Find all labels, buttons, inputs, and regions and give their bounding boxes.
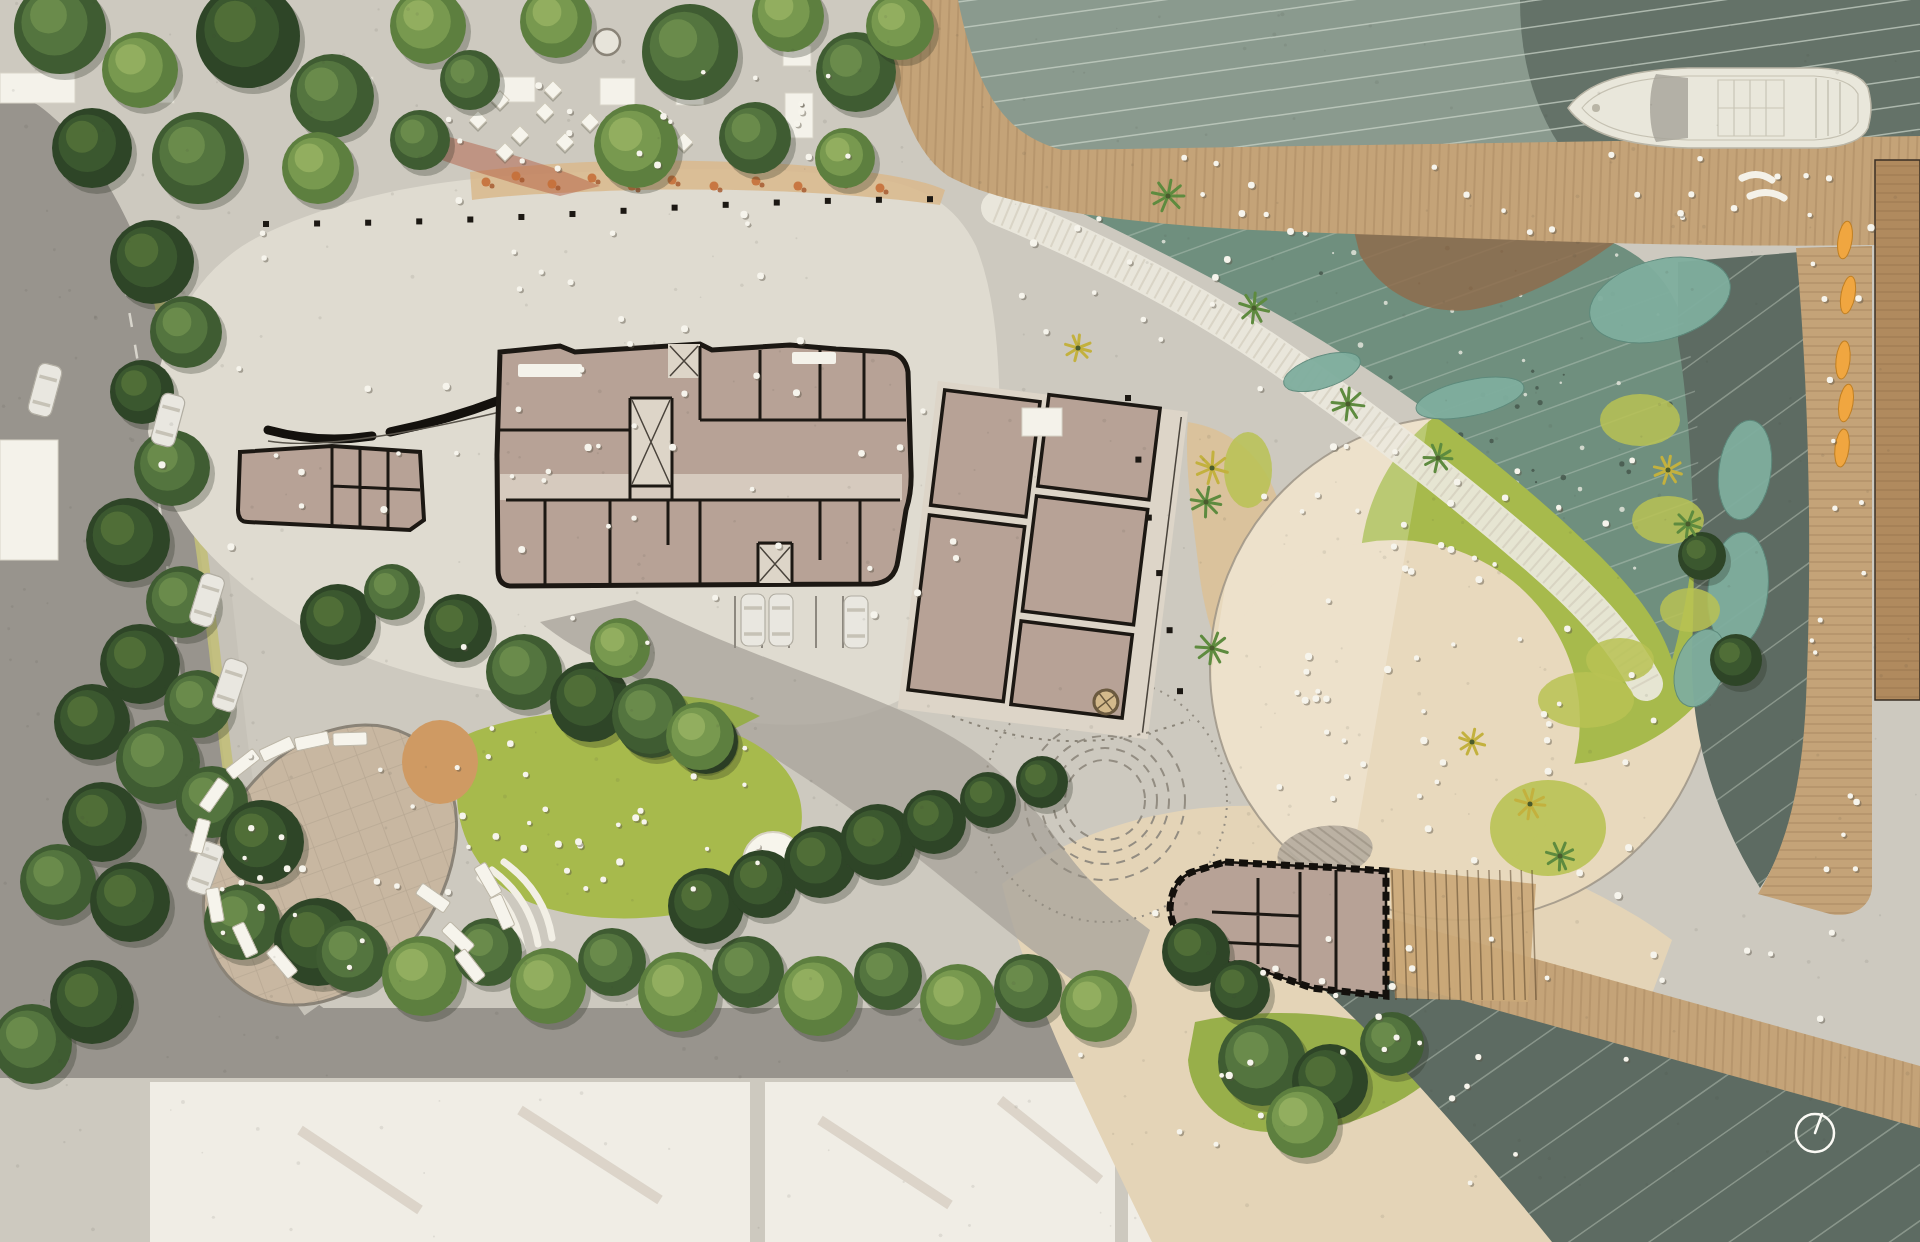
gravel-speckle — [1232, 995, 1236, 999]
rock-speckle — [1535, 386, 1539, 390]
gravel-speckle — [1686, 1157, 1689, 1160]
person-dot-head — [510, 474, 514, 478]
gravel-speckle — [624, 342, 626, 344]
gravel-speckle — [1183, 547, 1185, 549]
gravel-speckle — [787, 1194, 791, 1198]
person-dot-head — [459, 813, 466, 820]
person-dot-head — [1545, 768, 1552, 775]
gravel-speckle — [1375, 80, 1379, 84]
palm-trunk — [1528, 802, 1533, 807]
gravel-speckle — [740, 284, 744, 288]
gravel-speckle — [128, 879, 130, 881]
gravel-speckle — [1809, 226, 1811, 228]
gravel-speckle — [1280, 12, 1284, 16]
gravel-speckle — [1607, 276, 1609, 278]
gravel-speckle — [1468, 586, 1470, 588]
gravel-speckle — [1556, 259, 1558, 261]
gravel-speckle — [747, 886, 749, 888]
gravel-speckle — [1720, 733, 1722, 735]
gravel-speckle — [1672, 1169, 1675, 1172]
person-dot-head — [486, 754, 491, 759]
car — [769, 594, 793, 646]
person-dot-head — [546, 469, 551, 474]
person-dot-head — [1382, 1047, 1387, 1052]
gravel-speckle — [12, 89, 15, 92]
bollard — [263, 221, 269, 227]
tree-canopy-light — [913, 800, 939, 826]
person-dot-head — [691, 773, 697, 779]
gravel-speckle — [1284, 44, 1287, 47]
person-dot-head — [1514, 468, 1520, 474]
gravel-speckle — [958, 492, 960, 494]
gravel-speckle — [250, 505, 253, 508]
gravel-speckle — [322, 61, 325, 64]
person-dot-head — [260, 230, 266, 236]
masterplan-drawing — [0, 0, 1920, 1242]
gravel-speckle — [1283, 543, 1285, 545]
tree-canopy-light — [523, 960, 553, 990]
gravel-speckle — [186, 149, 189, 152]
gravel-speckle — [677, 717, 679, 719]
person-dot-head — [1264, 212, 1269, 217]
person-dot-head — [493, 833, 500, 840]
tree-canopy-light — [401, 120, 425, 144]
main-building-walls — [497, 344, 911, 586]
car — [741, 594, 765, 646]
gravel-speckle — [1503, 81, 1505, 83]
gravel-speckle — [637, 563, 640, 566]
gravel-speckle — [185, 834, 188, 837]
tree-canopy-light — [740, 861, 767, 888]
gravel-speckle — [772, 389, 774, 391]
gravel-speckle — [1184, 902, 1188, 906]
gravel-speckle — [1575, 920, 1579, 924]
person-dot-head — [1375, 1013, 1382, 1020]
gravel-speckle — [1500, 305, 1503, 308]
person-dot-head — [1827, 377, 1833, 383]
tree-canopy-light — [1371, 1022, 1397, 1048]
gravel-speckle — [1551, 757, 1555, 761]
gravel-speckle — [169, 33, 171, 35]
gravel-speckle — [1205, 133, 1208, 136]
gravel-speckle — [1316, 301, 1318, 303]
gravel-speckle — [1048, 801, 1050, 803]
person-dot-head — [1406, 945, 1413, 952]
gravel-speckle — [616, 778, 620, 782]
gravel-speckle — [219, 715, 223, 719]
gravel-speckle — [863, 618, 866, 621]
gravel-speckle — [1158, 16, 1161, 19]
palm-trunk — [1166, 194, 1171, 199]
person-dot-head — [668, 120, 672, 124]
gravel-speckle — [326, 246, 328, 248]
gravel-speckle — [58, 1059, 62, 1063]
palm-trunk — [1346, 402, 1351, 407]
gravel-speckle — [1034, 476, 1036, 478]
gravel-speckle — [1800, 460, 1802, 462]
person-dot-head — [1546, 721, 1552, 727]
gravel-speckle — [15, 2, 18, 5]
person-dot-head — [600, 876, 606, 882]
gravel-speckle — [1574, 495, 1576, 497]
gravel-speckle — [1146, 261, 1149, 264]
gravel-speckle — [1432, 519, 1434, 521]
person-dot-head — [511, 250, 516, 255]
gravel-speckle — [35, 69, 37, 71]
gravel-speckle — [1274, 439, 1278, 443]
gravel-speckle — [956, 34, 959, 37]
palm-trunk — [1558, 854, 1563, 859]
person-dot-head — [1826, 175, 1832, 181]
gravel-speckle — [461, 79, 464, 82]
gravel-speckle — [1426, 210, 1428, 212]
gravel-speckle — [776, 888, 780, 892]
gravel-speckle — [1658, 494, 1662, 498]
gravel-speckle — [1293, 117, 1296, 120]
rock-speckle — [1531, 469, 1534, 472]
context-building — [150, 1082, 750, 1242]
gravel-speckle — [1229, 801, 1232, 804]
gravel-speckle — [566, 892, 568, 894]
gravel-speckle — [1110, 440, 1112, 442]
bollard — [876, 197, 882, 203]
palm-trunk — [1252, 306, 1257, 311]
gravel-speckle — [968, 1224, 971, 1227]
gravel-speckle — [1248, 963, 1251, 966]
tree-canopy-light — [1279, 1098, 1308, 1127]
person-dot-head — [1248, 182, 1255, 189]
bollard — [621, 208, 627, 214]
gravel-speckle — [181, 291, 185, 295]
bollard — [416, 218, 422, 224]
gravel-speckle — [1658, 403, 1661, 406]
tree-canopy-light — [830, 45, 862, 77]
tree-canopy-light — [609, 117, 643, 151]
person-dot-head — [1409, 965, 1415, 971]
person-dot-head — [242, 856, 247, 861]
person-dot-head — [1302, 697, 1309, 704]
gravel-speckle — [1691, 288, 1694, 291]
garden-plant — [482, 178, 491, 187]
gravel-speckle — [938, 27, 941, 30]
gravel-speckle — [577, 537, 579, 539]
gravel-speckle — [377, 8, 379, 10]
person-dot-head — [1224, 256, 1231, 263]
gravel-speckle — [821, 367, 824, 370]
person-dot-head — [1408, 568, 1415, 575]
gravel-speckle — [1807, 960, 1811, 964]
bollard — [569, 211, 575, 217]
shrub-patch — [1660, 588, 1720, 632]
person-dot-head — [1312, 695, 1319, 702]
gravel-speckle — [920, 806, 923, 809]
person-dot-head — [742, 746, 747, 751]
person-dot-head — [1214, 1142, 1219, 1147]
person-dot-head — [753, 75, 758, 80]
gravel-speckle — [1115, 355, 1118, 358]
person-dot-head — [261, 255, 266, 260]
rock-speckle — [1489, 439, 1493, 443]
bollard — [518, 214, 524, 220]
garden-plant-small — [802, 188, 807, 193]
gravel-speckle — [1838, 817, 1841, 820]
gravel-speckle — [1272, 33, 1276, 37]
person-dot-head — [1492, 562, 1497, 567]
person-dot-head — [799, 102, 804, 107]
person-dot-head — [1389, 983, 1396, 990]
gravel-speckle — [185, 623, 187, 625]
rock-speckle — [1162, 240, 1166, 244]
gravel-speckle — [901, 161, 903, 163]
gravel-speckle — [342, 53, 346, 57]
gravel-speckle — [1447, 1108, 1449, 1110]
gravel-speckle — [1145, 1131, 1148, 1134]
person-dot-head — [616, 822, 621, 827]
gravel-speckle — [285, 932, 287, 934]
person-dot-head — [1402, 565, 1409, 572]
rock-speckle — [1523, 393, 1527, 397]
person-dot-head — [953, 555, 959, 561]
person-dot-head — [570, 616, 575, 621]
gravel-speckle — [1835, 71, 1839, 75]
person-dot-head — [1449, 1095, 1455, 1101]
gravel-speckle — [1145, 835, 1147, 837]
person-dot-head — [1629, 458, 1635, 464]
garden-plant-small — [718, 188, 723, 193]
gravel-speckle — [668, 1148, 670, 1150]
gravel-speckle — [629, 655, 632, 658]
person-dot-head — [1226, 1072, 1233, 1079]
gravel-speckle — [1391, 808, 1393, 810]
person-dot-head — [1219, 1073, 1224, 1078]
person-dot-head — [1557, 702, 1562, 707]
garden-plant — [512, 172, 521, 181]
person-dot-head — [750, 487, 755, 492]
gravel-speckle — [1548, 1157, 1551, 1160]
gravel-speckle — [273, 956, 275, 958]
person-dot-head — [1315, 689, 1320, 694]
gravel-speckle — [754, 727, 757, 730]
gravel-speckle — [1295, 313, 1297, 315]
gravel-speckle — [1251, 1018, 1255, 1022]
gravel-speckle — [836, 804, 838, 806]
gravel-speckle — [1446, 362, 1448, 364]
gravel-speckle — [1175, 978, 1177, 980]
person-dot-head — [1247, 1059, 1253, 1065]
tree-canopy-light — [114, 637, 146, 669]
gravel-speckle — [289, 776, 292, 779]
person-dot-head — [1807, 213, 1812, 218]
gravel-speckle — [1245, 654, 1248, 657]
gravel-speckle — [779, 350, 781, 352]
gravel-speckle — [918, 1018, 922, 1022]
person-dot-head — [583, 886, 588, 891]
person-dot-head — [654, 161, 661, 168]
gravel-speckle — [318, 316, 321, 319]
person-dot-head — [257, 904, 264, 911]
gravel-speckle — [186, 114, 188, 116]
person-dot-head — [705, 847, 709, 851]
person-dot-head — [466, 845, 471, 850]
rock-speckle — [1619, 461, 1624, 466]
person-dot-head — [221, 931, 226, 936]
gravel-speckle — [201, 1152, 203, 1154]
tree-canopy-light — [396, 949, 428, 981]
person-dot-head — [1260, 970, 1266, 976]
person-dot-head — [1502, 494, 1509, 501]
rock-speckle — [1388, 375, 1392, 379]
rock-speckle — [1351, 250, 1356, 255]
person-dot-head — [1602, 520, 1609, 527]
gravel-speckle — [1815, 856, 1817, 858]
gravel-speckle — [641, 577, 644, 580]
gravel-speckle — [1341, 647, 1343, 649]
gravel-speckle — [1728, 585, 1731, 588]
kiosk — [0, 440, 58, 560]
gravel-speckle — [712, 255, 714, 257]
gravel-speckle — [1358, 733, 1361, 736]
person-dot-head — [1078, 1053, 1083, 1058]
person-dot-head — [755, 861, 760, 866]
garden-plant-small — [596, 180, 601, 185]
person-dot-head — [596, 444, 601, 449]
gravel-speckle — [227, 211, 230, 214]
gravel-speckle — [1322, 550, 1326, 554]
person-dot-head — [396, 451, 401, 456]
tree-canopy-light — [601, 628, 625, 652]
gravel-speckle — [478, 453, 480, 455]
gravel-speckle — [243, 1034, 245, 1036]
person-dot-head — [539, 269, 544, 274]
gravel-speckle — [270, 995, 273, 998]
gravel-speckle — [1240, 766, 1242, 768]
person-dot-head — [1421, 709, 1426, 714]
person-dot-head — [1564, 626, 1571, 633]
gravel-speckle — [1346, 726, 1350, 730]
gravel-speckle — [425, 766, 427, 768]
gravel-speckle — [75, 357, 78, 360]
tree-canopy-light — [681, 880, 711, 910]
person-dot-head — [455, 197, 462, 204]
gravel-speckle — [1242, 1028, 1245, 1031]
gravel-speckle — [219, 1016, 221, 1018]
person-dot-head — [1855, 295, 1862, 302]
person-dot-head — [1261, 494, 1267, 500]
person-dot-head — [1541, 711, 1547, 717]
gravel-speckle — [1164, 234, 1167, 237]
gravel-speckle — [1247, 812, 1251, 816]
gravel-speckle — [433, 1235, 435, 1237]
gravel-speckle — [475, 694, 479, 698]
gravel-speckle — [1486, 450, 1489, 453]
gravel-speckle — [1023, 98, 1026, 101]
gravel-speckle — [1336, 538, 1339, 541]
gravel-speckle — [397, 608, 400, 611]
gravel-speckle — [903, 1181, 905, 1183]
person-dot-head — [1212, 274, 1219, 281]
tree-canopy-light — [214, 1, 256, 43]
gravel-speckle — [507, 451, 510, 454]
gravel-speckle — [525, 303, 528, 306]
gravel-speckle — [1072, 71, 1074, 73]
gravel-speckle — [340, 522, 342, 524]
person-dot-head — [712, 595, 718, 601]
gravel-speckle — [170, 1109, 172, 1111]
gravel-speckle — [1576, 194, 1580, 198]
garden-plant-small — [884, 190, 889, 195]
gravel-speckle — [93, 1, 95, 3]
gravel-speckle — [310, 111, 313, 114]
rock-speckle — [1537, 400, 1542, 405]
gravel-speckle — [506, 382, 509, 385]
gravel-speckle — [256, 1127, 260, 1131]
tree-canopy-light — [168, 127, 205, 164]
gravel-speckle — [1449, 988, 1451, 990]
person-dot-head — [1158, 337, 1163, 342]
gravel-speckle — [237, 745, 240, 748]
car — [844, 596, 868, 648]
gravel-speckle — [1243, 1123, 1245, 1125]
person-dot-head — [1344, 774, 1349, 779]
gravel-speckle — [1584, 782, 1587, 785]
gravel-speckle — [1143, 447, 1147, 451]
kiosk — [600, 78, 635, 105]
person-dot-head — [616, 858, 623, 865]
gravel-speckle — [1134, 1217, 1137, 1220]
gravel-speckle — [7, 627, 10, 630]
tree-canopy-light — [1174, 929, 1201, 956]
gravel-speckle — [59, 296, 61, 298]
gravel-speckle — [1046, 186, 1049, 189]
tree-canopy-light — [625, 690, 655, 720]
person-dot-head — [637, 151, 643, 157]
gravel-speckle — [118, 1005, 122, 1009]
gravel-speckle — [626, 1003, 628, 1005]
person-dot-head — [299, 503, 304, 508]
gravel-speckle — [1539, 666, 1541, 668]
gravel-speckle — [169, 422, 173, 426]
gravel-speckle — [1022, 152, 1026, 156]
gravel-speckle — [1324, 50, 1326, 52]
person-dot-head — [455, 765, 460, 770]
gravel-speckle — [810, 780, 813, 783]
gravel-speckle — [1102, 419, 1106, 423]
person-dot-head — [578, 366, 584, 372]
gravel-speckle — [896, 856, 899, 859]
person-dot-head — [445, 889, 451, 895]
bollard — [1135, 457, 1141, 463]
person-dot-head — [797, 337, 804, 344]
person-dot-head — [798, 109, 804, 115]
gravel-speckle — [535, 732, 537, 734]
person-dot-head — [527, 821, 532, 826]
tree-canopy-light — [564, 675, 596, 707]
person-dot-head — [1258, 1112, 1264, 1118]
rock-speckle — [1319, 271, 1323, 275]
gravel-speckle — [1895, 60, 1897, 62]
person-dot-head — [645, 640, 650, 645]
person-dot-head — [1475, 576, 1482, 583]
gravel-speckle — [1617, 577, 1619, 579]
gravel-speckle — [1059, 687, 1062, 690]
gravel-speckle — [1455, 793, 1457, 795]
gravel-speckle — [975, 871, 978, 874]
person-dot-head — [238, 880, 244, 886]
person-dot-head — [1391, 543, 1397, 549]
person-dot-head — [1817, 1015, 1824, 1022]
gravel-speckle — [887, 41, 889, 43]
tree-canopy-light — [878, 3, 905, 30]
